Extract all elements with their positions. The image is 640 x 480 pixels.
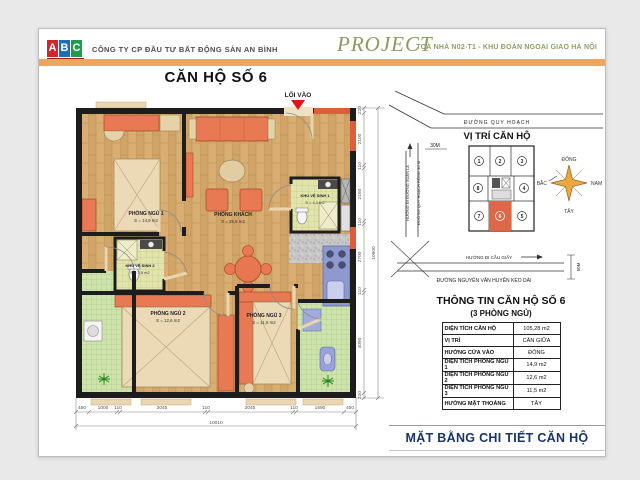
location-diagram: ĐƯỜNG QUY HOẠCH VỊ TRÍ CĂN HỘ 30M HƯỚNG … — [389, 91, 605, 291]
unit-number: 5 — [521, 214, 524, 220]
info-row-label: VỊ TRÍ — [442, 335, 513, 347]
logo-letter-b: B — [59, 40, 70, 57]
brochure-page: A B C LAND CÔNG TY CP ĐẦU TƯ BẤT ĐỘNG SẢ… — [38, 28, 606, 457]
room-area: S = 4,1 m2 — [305, 200, 325, 205]
room-label: KHU VỆ SINH 2 — [125, 263, 155, 268]
unit-number-highlighted: 6 — [499, 214, 502, 220]
dim-label: 2160 — [357, 188, 363, 199]
dim-label: 110 — [114, 405, 122, 411]
road-left-direction-label: HƯỚNG ĐI ĐƯỜNG XUÂN LA — [405, 165, 410, 221]
road-bottom-width-label: 50M — [576, 262, 581, 271]
road-top-label: ĐƯỜNG QUY HOẠCH — [464, 119, 530, 126]
info-row-label: DIỆN TÍCH PHÒNG NGỦ 2 — [442, 372, 513, 385]
room-label: PHÒNG NGỦ 3 — [246, 311, 281, 319]
logo-letter-a: A — [47, 40, 58, 57]
compass-north-pointer — [549, 176, 557, 181]
info-row-value: 14,9 m2 — [513, 359, 560, 372]
unit-number: 1 — [478, 159, 481, 165]
road-bottom-name-label: ĐƯỜNG NGUYỄN VĂN HUYÊN KÉO DÀI — [437, 276, 532, 284]
dim-label: 2700 — [357, 251, 363, 262]
logo-letters: A B C — [47, 40, 84, 57]
bedroom3-furniture — [239, 292, 291, 393]
info-row-value: TÂY — [513, 398, 560, 410]
brochure-canvas: A B C LAND CÔNG TY CP ĐẦU TƯ BẤT ĐỘNG SẢ… — [0, 0, 640, 480]
dimension-labels-right: 220 2100 110 2160 110 2700 110 4090 220 … — [357, 106, 377, 399]
table-row: DIỆN TÍCH CĂN HỘ 105,28 m2 — [442, 323, 560, 335]
unit-number: 3 — [521, 159, 524, 165]
info-row-label: DIỆN TÍCH CĂN HỘ — [442, 323, 513, 335]
compass-north: BẮC — [537, 179, 548, 187]
room-area: S = 3,5 m2 — [130, 270, 150, 275]
entry-label: LỐI VÀO — [285, 89, 312, 99]
project-subtitle: TOÀ NHÀ N02-T1 - KHU ĐOÀN NGOẠI GIAO HÀ … — [416, 44, 597, 51]
table-row: DIỆN TÍCH PHÒNG NGỦ 1 14,9 m2 — [442, 359, 560, 372]
compass-rose: ĐÔNG BẮC NAM TÂY — [537, 156, 602, 215]
compass-south: NAM — [591, 181, 602, 187]
unit-number: 2 — [499, 159, 502, 165]
info-table: DIỆN TÍCH CĂN HỘ 105,28 m2 VỊ TRÍ CĂN GI… — [442, 322, 561, 410]
detail-plan-caption: MẶT BẰNG CHI TIẾT CĂN HỘ — [389, 425, 605, 451]
info-row-value: 12,6 m2 — [513, 372, 560, 385]
table-row: VỊ TRÍ CĂN GIỮA — [442, 335, 560, 347]
info-title: THÔNG TIN CĂN HỘ SỐ 6 — [436, 295, 566, 307]
accent-bar — [39, 59, 605, 66]
info-row-value: CĂN GIỮA — [513, 335, 560, 347]
room-label: PHÒNG NGỦ 2 — [150, 309, 185, 317]
dim-label: 220 — [357, 106, 363, 114]
dim-label: 2100 — [357, 133, 363, 144]
table-row: HƯỚNG CỬA VÀO ĐÔNG — [442, 347, 560, 359]
dim-label: 110 — [357, 162, 363, 170]
unit-number: 7 — [478, 214, 481, 220]
dim-label: 110 — [290, 405, 298, 411]
road-left-name-label: ĐƯỜNG QUY HOẠCH RỘNG 30 M — [416, 161, 421, 225]
info-row-value: 11,5 m2 — [513, 385, 560, 398]
info-row-value: 105,28 m2 — [513, 323, 560, 335]
logo-letter-c: C — [71, 40, 82, 57]
room-label: PHÒNG KHÁCH — [214, 210, 252, 218]
unit-number: 4 — [523, 186, 526, 192]
info-row-label: HƯỚNG CỬA VÀO — [442, 347, 513, 359]
dim-label: 1000 — [98, 405, 109, 411]
table-row: HƯỚNG MẶT THOÁNG TÂY — [442, 398, 560, 410]
room-area: S = 25,5 m2 — [221, 219, 245, 224]
dim-label: 3045 — [157, 405, 168, 411]
road-left-width-label: 30M — [430, 143, 440, 149]
room-area: S = 14,9 m2 — [134, 218, 158, 223]
apartment-plan-title: CĂN HỘ SỐ 6 — [76, 69, 356, 86]
compass-east: ĐÔNG — [562, 156, 577, 163]
road-left-arrow-icon — [408, 143, 413, 157]
dim-label: 450 — [78, 405, 86, 411]
dim-label: 110 — [357, 287, 363, 295]
building-plate: 1 2 3 8 4 7 6 5 — [469, 146, 534, 231]
floor-plan-drawing: LỐI VÀO PHÒNG NGỦ 1 S = 14,9 m2 PHÒNG KH… — [56, 89, 401, 454]
dim-label: 4090 — [357, 337, 363, 348]
dim-label: 110 — [357, 218, 363, 226]
dim-label: 450 — [346, 405, 354, 411]
room-area: S = 11,5 m2 — [252, 320, 276, 325]
dim-label: 3045 — [245, 405, 256, 411]
unit-number: 8 — [477, 186, 480, 192]
room-label: KHU VỆ SINH 1 — [300, 193, 330, 198]
info-row-label: HƯỚNG MẶT THOÁNG — [442, 398, 513, 410]
info-subtitle: (3 PHÒNG NGỦ) — [436, 309, 566, 318]
dim-label: 1690 — [315, 405, 326, 411]
room-label: PHÒNG NGỦ 1 — [128, 209, 163, 217]
dim-total: 10900 — [371, 246, 377, 260]
dim-label: 220 — [357, 391, 363, 399]
room-area: S = 12,6 m2 — [156, 318, 180, 323]
apartment-info-panel: THÔNG TIN CĂN HỘ SỐ 6 (3 PHÒNG NGỦ) DIỆN… — [436, 295, 566, 410]
company-name: CÔNG TY CP ĐẦU TƯ BẤT ĐỘNG SẢN AN BÌNH — [92, 45, 278, 54]
table-row: DIỆN TÍCH PHÒNG NGỦ 2 12,6 m2 — [442, 372, 560, 385]
info-row-label: DIỆN TÍCH PHÒNG NGỦ 1 — [442, 359, 513, 372]
road-bottom-direction-label: HƯỚNG ĐI CẦU GIẤY — [466, 254, 512, 260]
dim-label: 110 — [202, 405, 210, 411]
kitchen-counter — [323, 246, 350, 306]
dim-total: 10010 — [209, 420, 223, 426]
info-row-label: DIỆN TÍCH PHÒNG NGỦ 3 — [442, 385, 513, 398]
info-row-value: ĐÔNG — [513, 347, 560, 359]
dimension-labels-bottom: 450 1000 110 3045 110 3045 110 1690 450 … — [78, 405, 354, 426]
compass-west: TÂY — [564, 208, 574, 215]
entry-marker: LỐI VÀO — [285, 89, 312, 110]
location-title: VỊ TRÍ CĂN HỘ — [463, 130, 530, 142]
table-row: DIỆN TÍCH PHÒNG NGỦ 3 11,5 m2 — [442, 385, 560, 398]
road-bottom-arrow-icon — [521, 255, 543, 260]
